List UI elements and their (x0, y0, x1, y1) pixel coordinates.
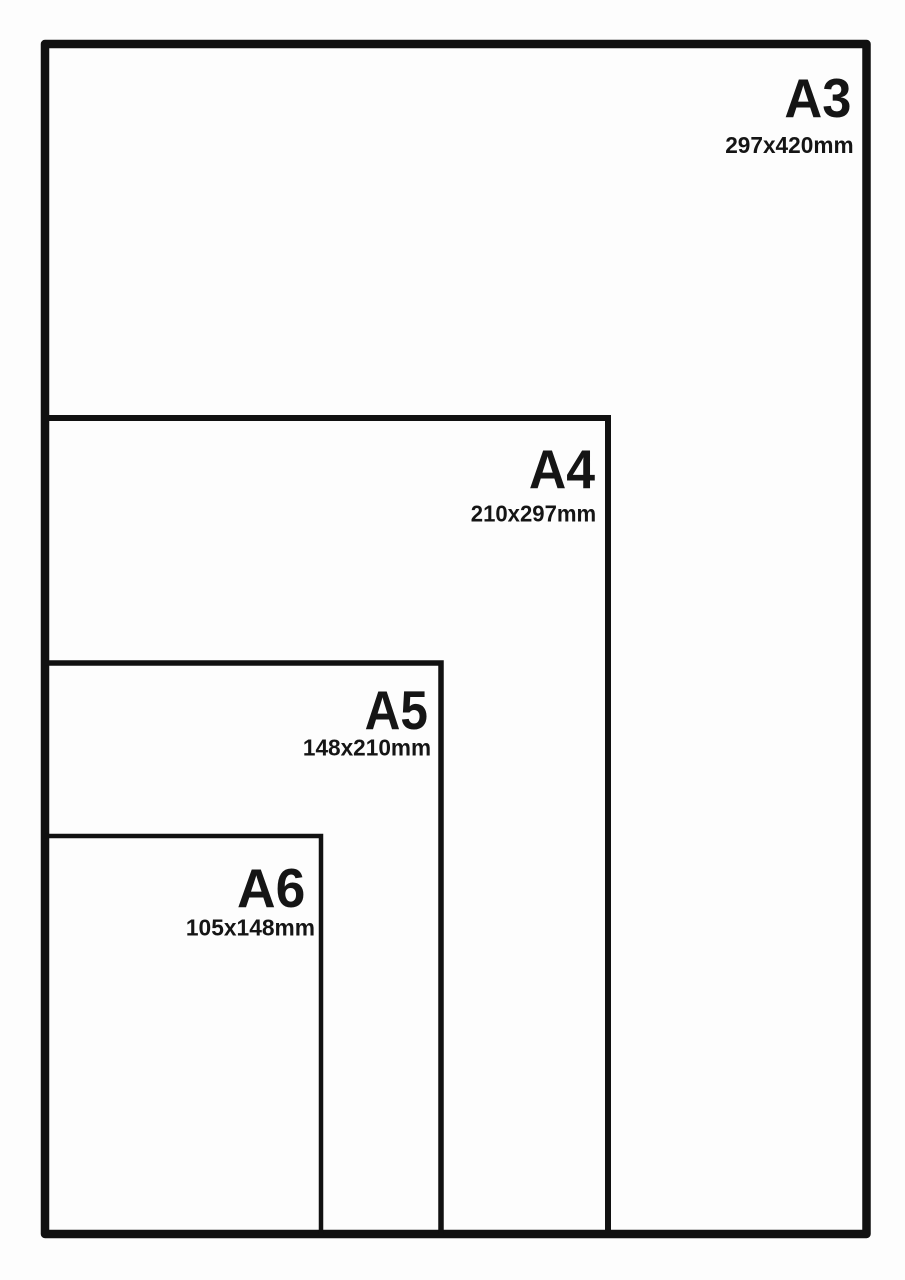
svg-text:A4: A4 (529, 438, 596, 500)
svg-text:297x420mm: 297x420mm (725, 132, 853, 158)
svg-text:A5: A5 (365, 679, 428, 741)
svg-text:210x297mm: 210x297mm (471, 501, 596, 527)
svg-text:A3: A3 (784, 67, 851, 129)
svg-text:A6: A6 (237, 857, 305, 919)
svg-text:148x210mm: 148x210mm (303, 735, 431, 761)
svg-text:105x148mm: 105x148mm (186, 915, 315, 941)
